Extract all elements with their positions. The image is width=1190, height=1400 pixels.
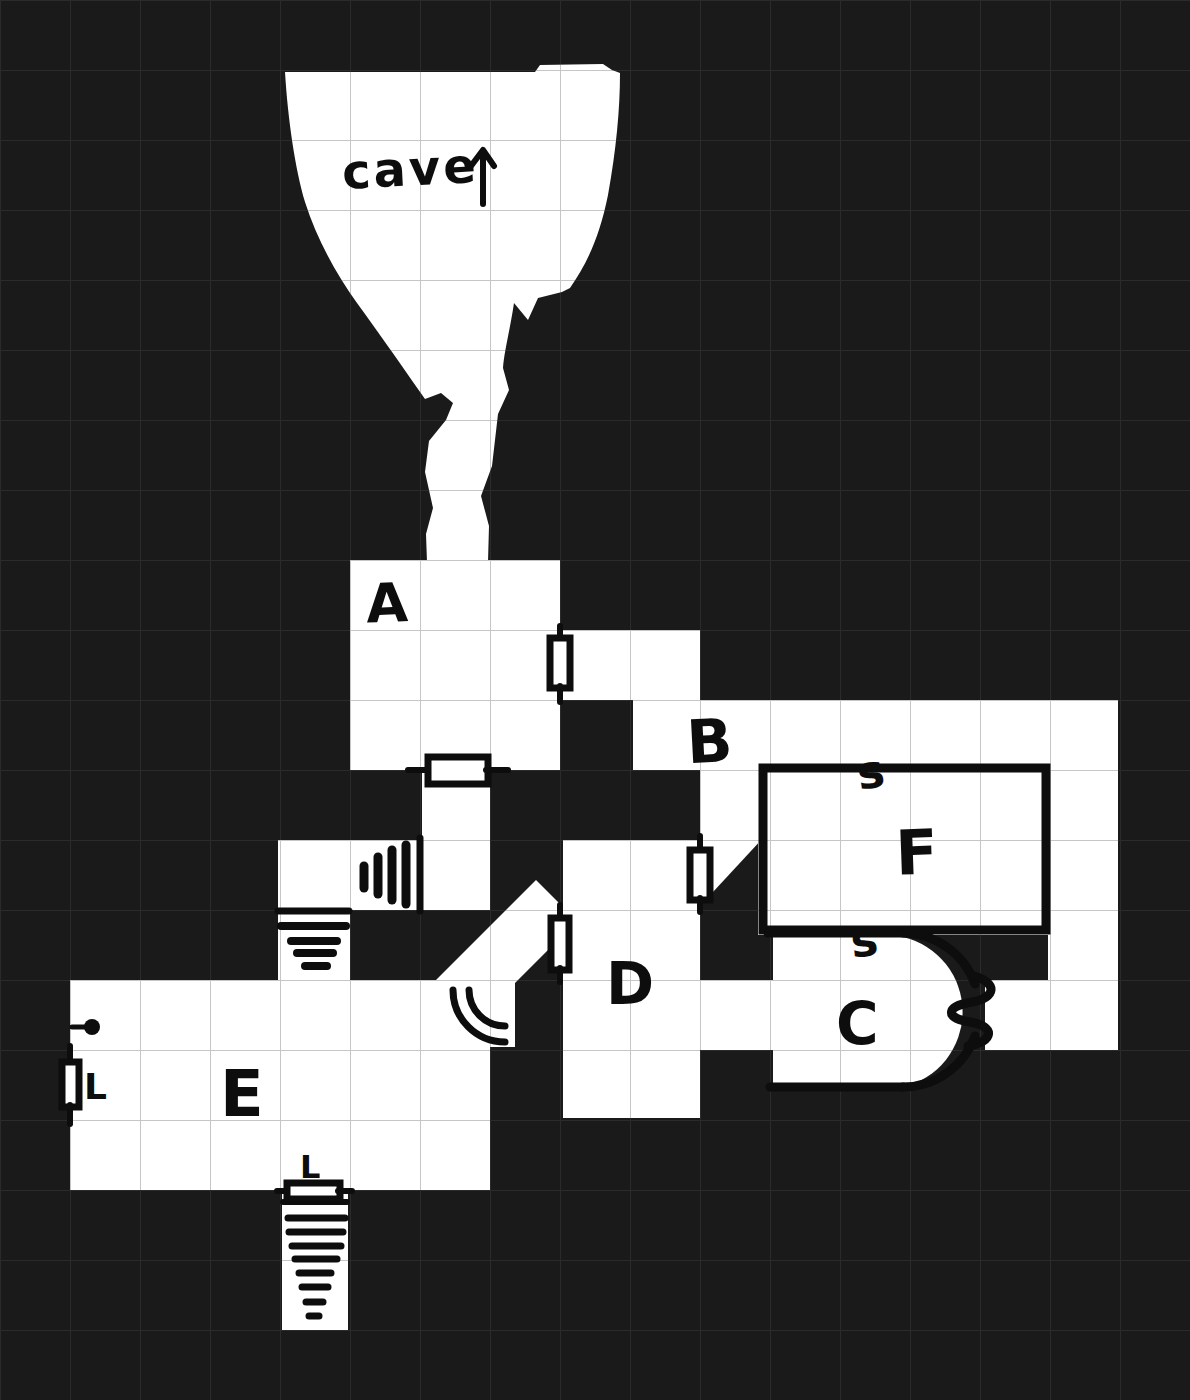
door-b-d — [690, 850, 710, 900]
corridor-d-c — [700, 980, 775, 1050]
door-a-east — [550, 638, 570, 688]
door-e-d — [551, 918, 569, 970]
corridor-a-south — [422, 770, 490, 910]
room-e-label: E — [220, 1057, 264, 1131]
map-canvas: cave A B C D E F s s L L — [0, 0, 1190, 1400]
corridor-south-of-f — [985, 980, 1118, 1050]
door-e-west — [62, 1062, 79, 1107]
door-a-south — [428, 757, 488, 784]
lock-mark-south: L — [300, 1148, 320, 1186]
room-f-label: F — [894, 815, 939, 889]
secret-door-mark-bottom: s — [848, 912, 881, 969]
room-b-label: B — [685, 705, 734, 777]
corridor-a-east — [560, 630, 700, 700]
room-e-floor — [70, 980, 490, 1190]
room-a-label: A — [365, 571, 409, 635]
room-d-label: D — [606, 950, 654, 1018]
lock-mark-west: L — [84, 1066, 107, 1107]
cave-label: cave — [341, 137, 480, 200]
dungeon-map: cave A B C D E F s s L L — [0, 0, 1190, 1400]
stair-alcove-upper — [278, 840, 422, 910]
room-c-label: C — [836, 990, 879, 1058]
